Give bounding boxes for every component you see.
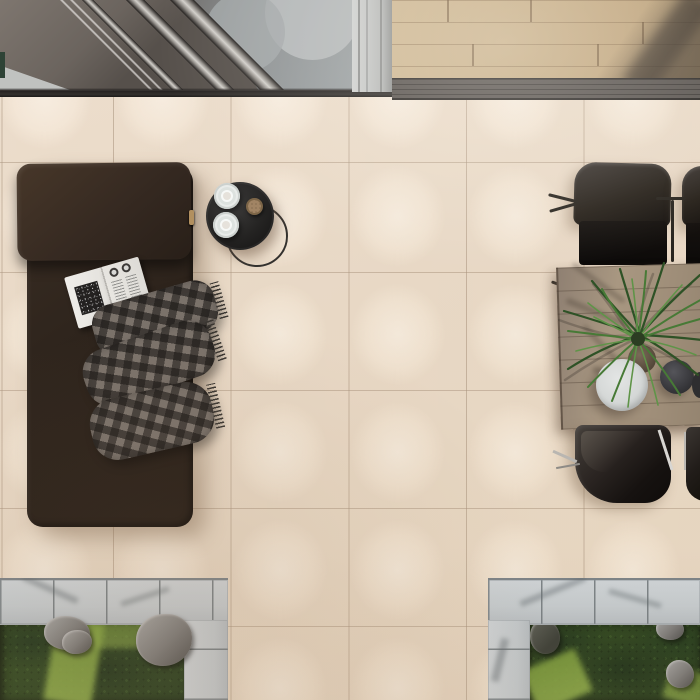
paver-border-left — [488, 620, 530, 700]
cup — [218, 187, 236, 205]
chair-highlight — [581, 431, 650, 472]
magazine-photo — [120, 262, 131, 273]
snack-dish — [246, 198, 263, 215]
dining-chair — [573, 162, 672, 228]
cup — [217, 216, 235, 234]
plank-seam — [447, 0, 449, 22]
patio-render — [0, 0, 700, 700]
chair-leg — [684, 432, 686, 470]
plaid-blanket — [80, 288, 222, 474]
daybed-hinge — [189, 210, 194, 225]
garden-right-foliage — [528, 620, 700, 700]
wood-floor — [392, 0, 700, 78]
magazine-photo — [108, 267, 119, 278]
dining-chair — [682, 166, 700, 226]
cup-and-saucer — [214, 183, 240, 209]
daybed-headrest — [16, 162, 191, 261]
glass-door — [0, 0, 352, 90]
dining-chair — [686, 427, 700, 501]
cup-and-saucer — [213, 212, 239, 238]
chair-frame — [671, 200, 674, 262]
door-jamb — [352, 0, 392, 92]
garden-left — [0, 578, 228, 700]
garden-right — [488, 578, 700, 700]
rock — [530, 620, 560, 654]
threshold-track — [392, 78, 700, 100]
plant-reflection — [0, 52, 5, 78]
dining-chair — [575, 425, 671, 503]
plank-seam — [530, 0, 532, 22]
plank-seam — [472, 44, 474, 66]
door-threshold — [0, 88, 392, 97]
palm-plant — [548, 255, 700, 433]
rock — [666, 660, 694, 688]
